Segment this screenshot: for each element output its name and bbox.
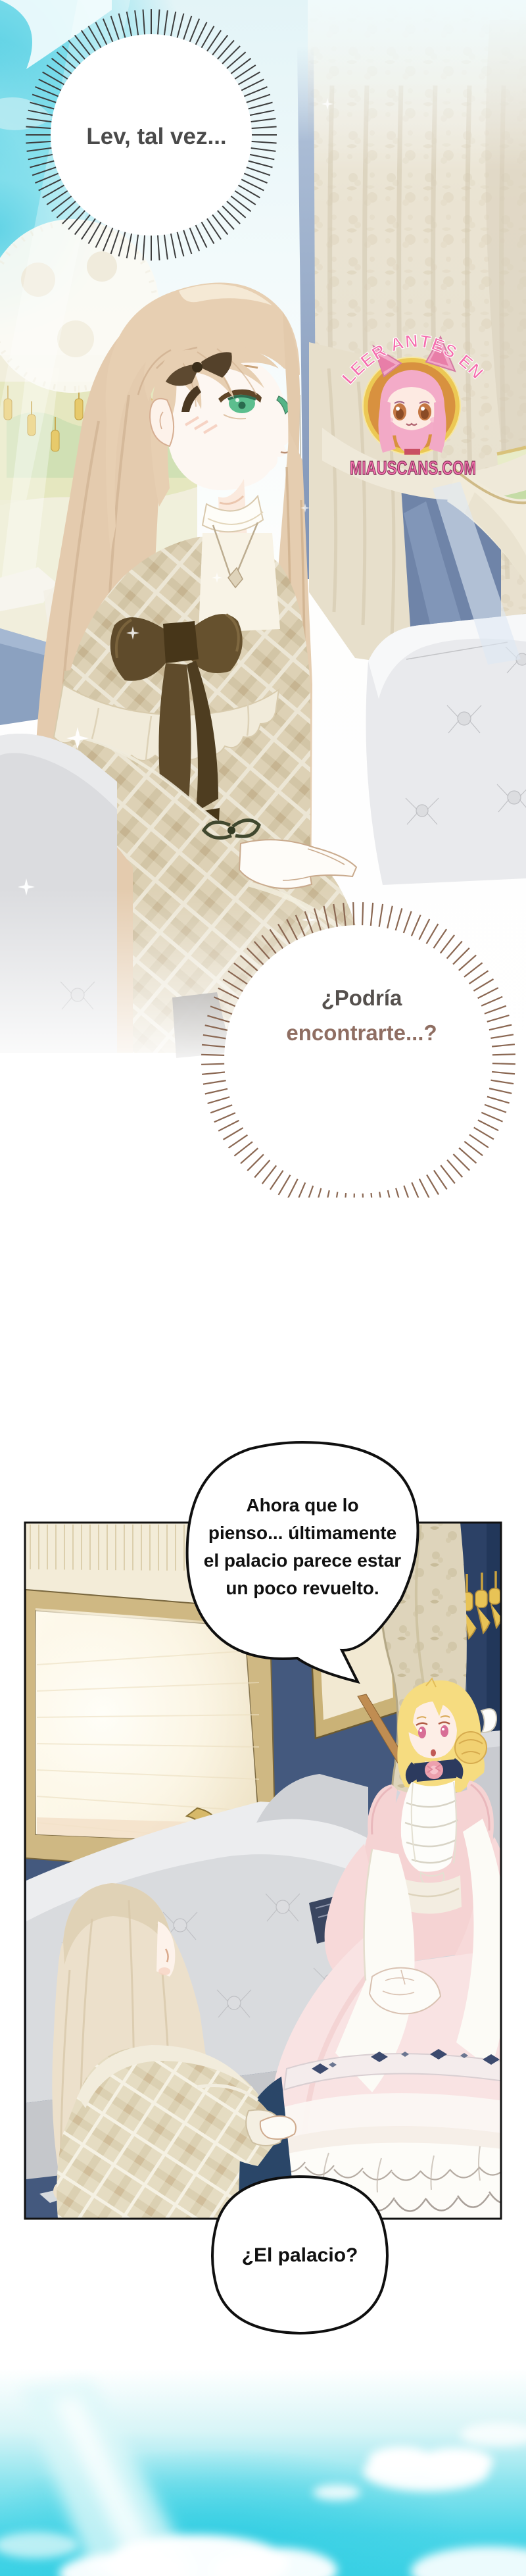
svg-text:el palacio parece estar: el palacio parece estar (204, 1550, 402, 1571)
svg-text:pienso... últimamente: pienso... últimamente (208, 1523, 396, 1543)
svg-text:¿Podría: ¿Podría (322, 986, 402, 1010)
svg-text:un poco revuelto.: un poco revuelto. (226, 1578, 379, 1598)
svg-text:¿El palacio?: ¿El palacio? (242, 2244, 358, 2266)
svg-text:Lev, tal vez...: Lev, tal vez... (86, 124, 226, 149)
svg-text:Ahora que lo: Ahora que lo (246, 1495, 358, 1515)
svg-text:encontrarte...?: encontrarte...? (286, 1021, 437, 1045)
svg-text:MIAUSCANS.COM: MIAUSCANS.COM (350, 458, 476, 479)
